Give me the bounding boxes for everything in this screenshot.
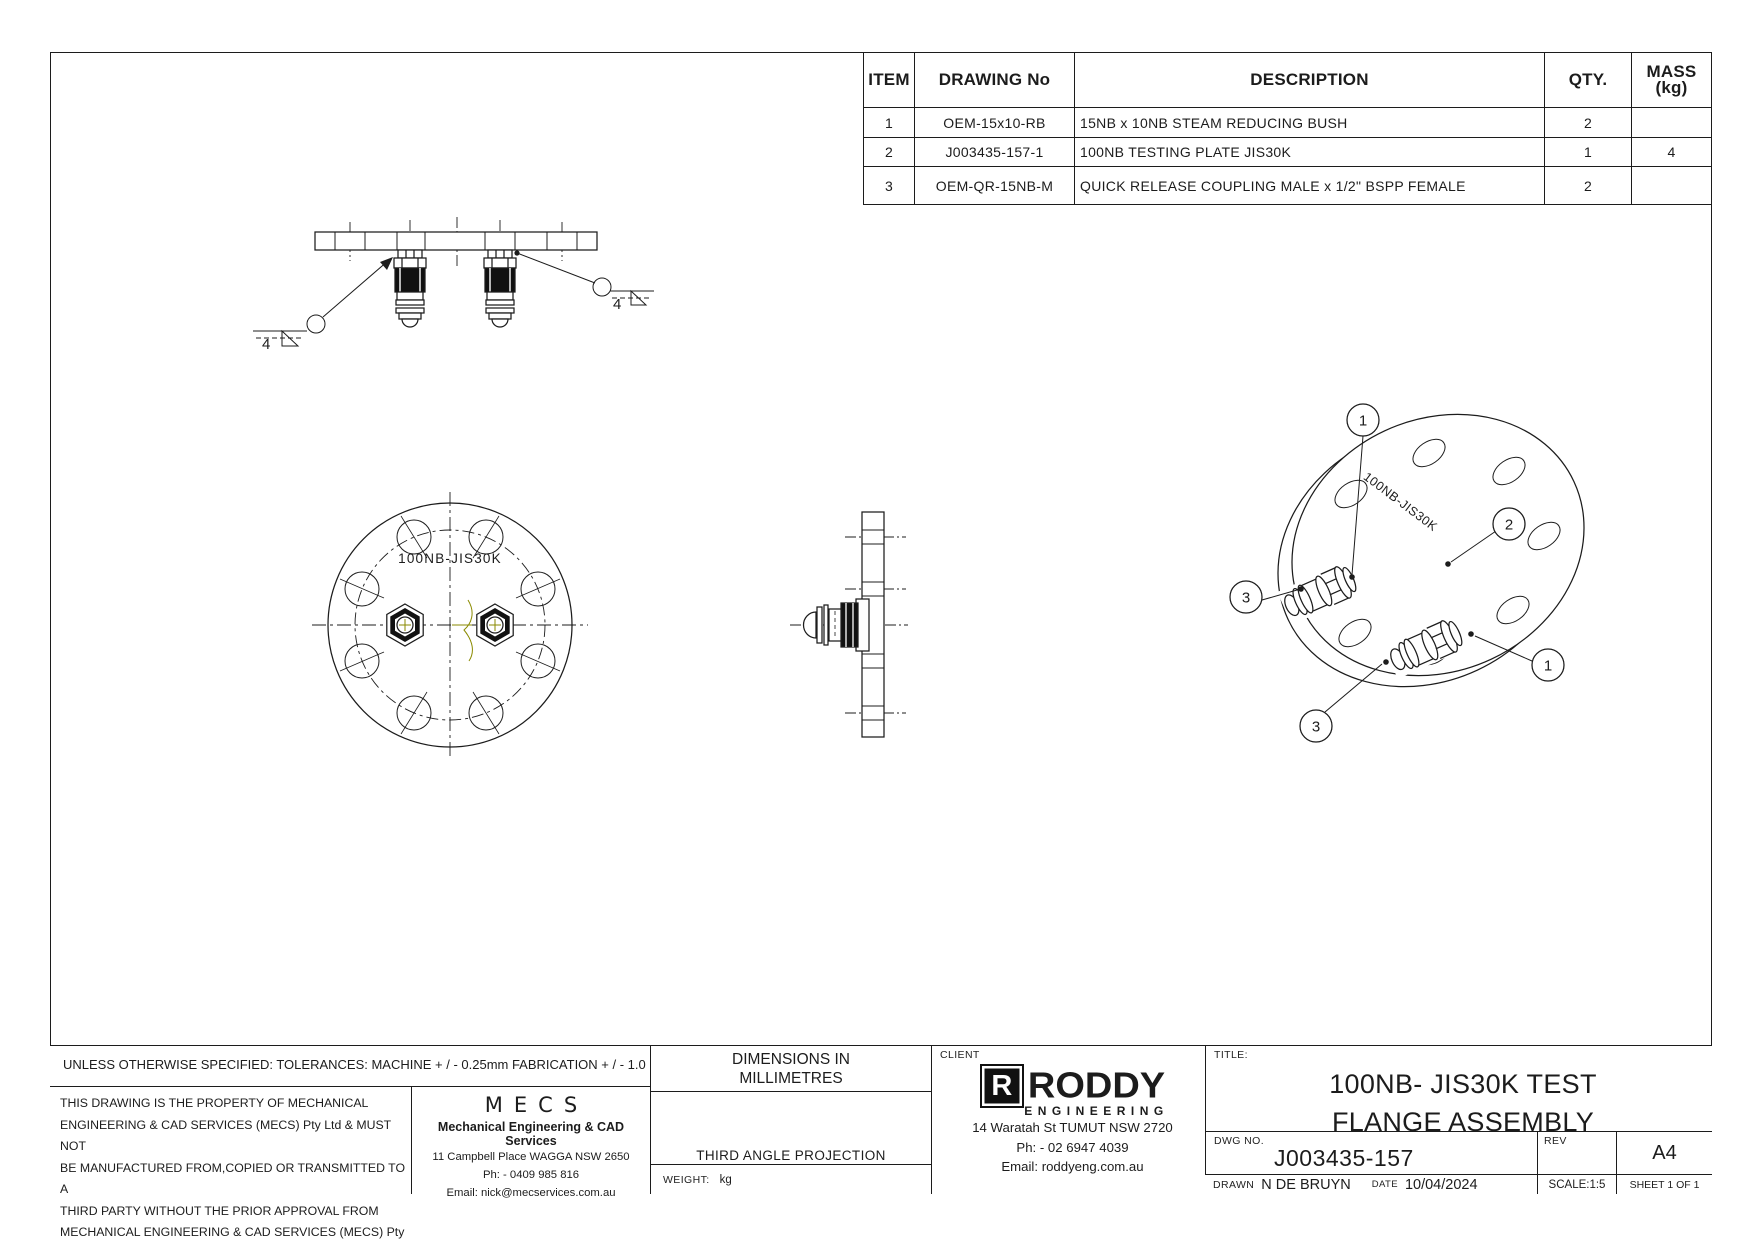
drawing-title-line1: 100NB- JIS30K TEST bbox=[1214, 1069, 1712, 1099]
view-iso: 100NB-JIS30K bbox=[1230, 367, 1627, 742]
roddy-wordmark: RODDY bbox=[1028, 1066, 1165, 1107]
drawn-by: N DE BRUYN bbox=[1261, 1177, 1350, 1193]
date-value: 10/04/2024 bbox=[1405, 1177, 1478, 1193]
view-side bbox=[790, 512, 908, 737]
weld-size-right: 4 bbox=[613, 296, 621, 313]
coupling-side-view bbox=[804, 599, 870, 651]
balloon-item-1b: 1 bbox=[1532, 649, 1564, 681]
sheet-size-cell: A4 bbox=[1616, 1131, 1712, 1174]
bom-header-qty: QTY. bbox=[1544, 53, 1631, 107]
drawing-sheet: 4 4 bbox=[0, 0, 1753, 1240]
date-label: DATE bbox=[1372, 1179, 1398, 1190]
mecs-email: Email: nick@mecservices.com.au bbox=[412, 1184, 650, 1202]
property-line: BE MANUFACTURED FROM,COPIED OR TRANSMITT… bbox=[60, 1158, 411, 1201]
dimensions-note-cell: DIMENSIONS IN MILLIMETRES bbox=[650, 1046, 931, 1091]
bom-cell-mass bbox=[1631, 166, 1711, 204]
roddy-r-icon: R bbox=[980, 1064, 1024, 1108]
view-front: 100NB-JIS30K bbox=[312, 492, 588, 758]
roddy-logo: R RODDY ENGINEERING bbox=[940, 1064, 1205, 1118]
client-cell: CLIENT R RODDY ENGINEERING 14 Waratah St… bbox=[931, 1046, 1205, 1194]
title-cell: TITLE: 100NB- JIS30K TEST FLANGE ASSEMBL… bbox=[1205, 1046, 1712, 1131]
bom-cell-mass: 4 bbox=[1631, 137, 1711, 166]
client-phone: Ph: - 02 6947 4039 bbox=[940, 1138, 1205, 1158]
bom-cell-description: 100NB TESTING PLATE JIS30K bbox=[1074, 137, 1544, 166]
bom-cell-qty: 1 bbox=[1544, 137, 1631, 166]
balloon-item-1: 1 bbox=[1347, 404, 1379, 436]
weight-value: kg bbox=[720, 1174, 732, 1186]
balloon-item-3b: 3 bbox=[1300, 710, 1332, 742]
balloon-number: 1 bbox=[1544, 658, 1552, 675]
coupling-top-view bbox=[394, 250, 516, 327]
bom-cell-drawing-no: OEM-15x10-RB bbox=[914, 107, 1074, 137]
bom-cell-drawing-no: J003435-157-1 bbox=[914, 137, 1074, 166]
drawn-date-cell: DRAWN N DE BRUYN DATE 10/04/2024 bbox=[1205, 1174, 1537, 1194]
sheet-value: SHEET 1 OF 1 bbox=[1630, 1179, 1700, 1191]
sheet-cell: SHEET 1 OF 1 bbox=[1616, 1174, 1712, 1194]
dwg-no-cell: DWG NO. J003435-157 bbox=[1205, 1131, 1537, 1174]
coupling-front-right bbox=[477, 604, 513, 646]
weld-symbol-left: 4 bbox=[253, 257, 393, 353]
bom-table: ITEM DRAWING No DESCRIPTION QTY. MASS (k… bbox=[863, 52, 1712, 205]
client-address: 14 Waratah St TUMUT NSW 2720 bbox=[940, 1118, 1205, 1138]
projection-cell: THIRD ANGLE PROJECTION bbox=[650, 1091, 931, 1164]
weight-label: WEIGHT: bbox=[663, 1174, 710, 1186]
dwg-no-value: J003435-157 bbox=[1274, 1145, 1537, 1172]
mecs-logo: MECS bbox=[412, 1093, 650, 1117]
bom-cell-qty: 2 bbox=[1544, 107, 1631, 137]
bom-cell-description: QUICK RELEASE COUPLING MALE x 1/2" BSPP … bbox=[1074, 166, 1544, 204]
title-label: TITLE: bbox=[1214, 1049, 1712, 1061]
bom-header-description: DESCRIPTION bbox=[1074, 53, 1544, 107]
property-note: THIS DRAWING IS THE PROPERTY OF MECHANIC… bbox=[50, 1086, 411, 1194]
bom-cell-description: 15NB x 10NB STEAM REDUCING BUSH bbox=[1074, 107, 1544, 137]
client-label: CLIENT bbox=[940, 1049, 1205, 1061]
balloon-number: 2 bbox=[1505, 517, 1513, 534]
weld-size-left: 4 bbox=[262, 336, 270, 353]
balloon-number: 3 bbox=[1312, 719, 1320, 736]
mecs-address: 11 Campbell Place WAGGA NSW 2650 bbox=[412, 1148, 650, 1166]
bom-cell-qty: 2 bbox=[1544, 166, 1631, 204]
sheet-size: A4 bbox=[1652, 1142, 1676, 1165]
scale-value: SCALE:1:5 bbox=[1549, 1179, 1606, 1191]
weight-cell: WEIGHT: kg bbox=[650, 1164, 931, 1194]
coupling-front-left bbox=[387, 604, 423, 646]
bom-cell-item: 2 bbox=[864, 137, 914, 166]
property-line: THIRD PARTY WITHOUT THE PRIOR APPROVAL F… bbox=[60, 1201, 411, 1223]
mecs-name: Mechanical Engineering & CAD Services bbox=[412, 1120, 650, 1148]
balloon-item-2: 2 bbox=[1493, 508, 1525, 540]
front-plate-label: 100NB-JIS30K bbox=[398, 551, 502, 566]
rev-label: REV bbox=[1544, 1135, 1616, 1147]
tolerance-note: UNLESS OTHERWISE SPECIFIED: TOLERANCES: … bbox=[50, 1046, 650, 1086]
property-line: THIS DRAWING IS THE PROPERTY OF MECHANIC… bbox=[60, 1093, 411, 1115]
client-email: Email: roddyeng.com.au bbox=[940, 1157, 1205, 1177]
scale-cell: SCALE:1:5 bbox=[1537, 1174, 1616, 1194]
weld-symbol-right: 4 bbox=[514, 250, 654, 313]
balloon-number: 1 bbox=[1359, 413, 1367, 430]
bom-cell-item: 3 bbox=[864, 166, 914, 204]
dimensions-note: DIMENSIONS IN MILLIMETRES bbox=[701, 1050, 881, 1088]
drawn-label: DRAWN bbox=[1213, 1179, 1254, 1191]
rev-cell: REV bbox=[1537, 1131, 1616, 1174]
bom-header-item: ITEM bbox=[864, 53, 914, 107]
balloon-number: 3 bbox=[1242, 590, 1250, 607]
mecs-block: MECS Mechanical Engineering & CAD Servic… bbox=[411, 1086, 650, 1194]
property-line: MECHANICAL ENGINEERING & CAD SERVICES (M… bbox=[60, 1222, 411, 1240]
projection-label: THIRD ANGLE PROJECTION bbox=[651, 1148, 931, 1163]
mecs-phone: Ph: - 0409 985 816 bbox=[412, 1166, 650, 1184]
bom-cell-drawing-no: OEM-QR-15NB-M bbox=[914, 166, 1074, 204]
bom-cell-mass bbox=[1631, 107, 1711, 137]
property-line: ENGINEERING & CAD SERVICES (MECS) Pty Lt… bbox=[60, 1115, 411, 1158]
balloon-item-3: 3 bbox=[1230, 581, 1262, 613]
bom-cell-item: 1 bbox=[864, 107, 914, 137]
title-block: UNLESS OTHERWISE SPECIFIED: TOLERANCES: … bbox=[50, 1045, 1712, 1193]
bom-header-mass: MASS (kg) bbox=[1631, 53, 1711, 107]
view-top: 4 4 bbox=[253, 217, 654, 353]
bom-header-drawing-no: DRAWING No bbox=[914, 53, 1074, 107]
